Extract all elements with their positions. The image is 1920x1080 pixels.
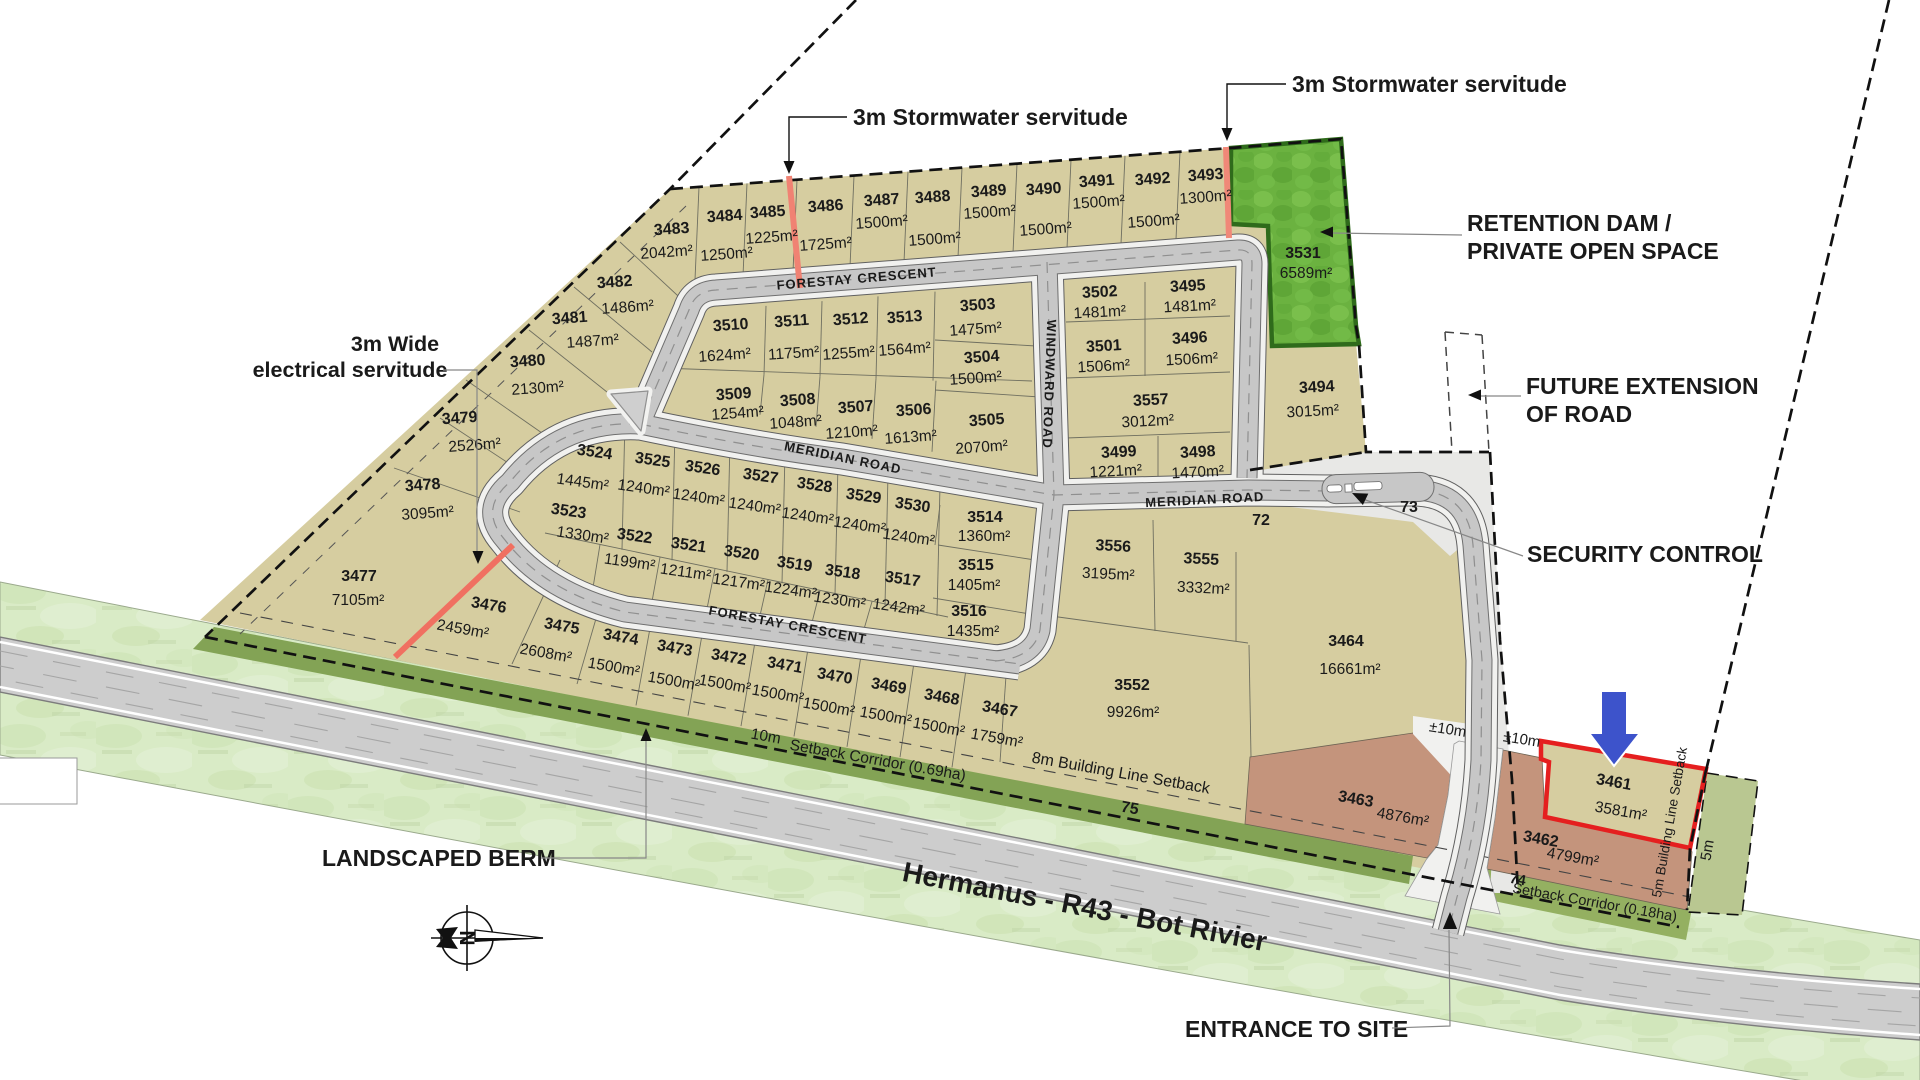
svg-text:3m Wide: 3m Wide bbox=[351, 332, 439, 356]
svg-text:1435m²: 1435m² bbox=[947, 623, 1000, 640]
svg-text:3531: 3531 bbox=[1285, 245, 1321, 262]
svg-text:72: 72 bbox=[1252, 512, 1270, 529]
svg-text:3477: 3477 bbox=[341, 568, 377, 585]
svg-text:3555: 3555 bbox=[1183, 550, 1220, 569]
svg-text:3498: 3498 bbox=[1180, 443, 1217, 462]
svg-text:1405m²: 1405m² bbox=[948, 577, 1001, 594]
svg-text:75: 75 bbox=[1120, 799, 1141, 819]
svg-text:1481m²: 1481m² bbox=[1163, 297, 1216, 317]
svg-text:16661m²: 16661m² bbox=[1319, 661, 1380, 678]
svg-text:3556: 3556 bbox=[1095, 537, 1132, 556]
svg-text:ENTRANCE TO SITE: ENTRANCE TO SITE bbox=[1185, 1016, 1408, 1042]
svg-text:1506m²: 1506m² bbox=[1077, 357, 1130, 377]
svg-text:3195m²: 3195m² bbox=[1082, 565, 1135, 585]
svg-text:3512: 3512 bbox=[832, 310, 869, 329]
svg-text:3516: 3516 bbox=[951, 603, 987, 620]
svg-text:3483: 3483 bbox=[653, 220, 690, 239]
svg-text:3492: 3492 bbox=[1134, 170, 1171, 189]
svg-text:3487: 3487 bbox=[863, 191, 900, 210]
svg-text:3m Stormwater servitude: 3m Stormwater servitude bbox=[1292, 71, 1567, 97]
svg-text:3012m²: 3012m² bbox=[1121, 412, 1174, 432]
svg-text:3552: 3552 bbox=[1114, 677, 1150, 694]
svg-text:7105m²: 7105m² bbox=[332, 592, 385, 609]
svg-text:3488: 3488 bbox=[914, 188, 951, 207]
svg-text:3557: 3557 bbox=[1133, 391, 1170, 410]
svg-text:3478: 3478 bbox=[404, 476, 441, 495]
svg-text:RETENTION DAM /: RETENTION DAM / bbox=[1467, 210, 1672, 236]
svg-text:3m Stormwater servitude: 3m Stormwater servitude bbox=[853, 104, 1128, 130]
svg-text:3501: 3501 bbox=[1086, 337, 1123, 356]
svg-text:3490: 3490 bbox=[1025, 180, 1062, 199]
svg-text:3508: 3508 bbox=[779, 391, 816, 410]
svg-text:6589m²: 6589m² bbox=[1280, 265, 1333, 282]
svg-text:3499: 3499 bbox=[1101, 443, 1138, 462]
svg-text:3332m²: 3332m² bbox=[1177, 579, 1230, 599]
svg-text:1481m²: 1481m² bbox=[1073, 303, 1126, 323]
svg-text:LANDSCAPED BERM: LANDSCAPED BERM bbox=[322, 845, 556, 871]
svg-text:1360m²: 1360m² bbox=[958, 528, 1011, 545]
svg-text:3464: 3464 bbox=[1328, 633, 1364, 650]
svg-text:3482: 3482 bbox=[596, 273, 633, 292]
svg-text:PRIVATE OPEN SPACE: PRIVATE OPEN SPACE bbox=[1467, 238, 1719, 264]
svg-text:1470m²: 1470m² bbox=[1171, 463, 1224, 483]
svg-text:1221m²: 1221m² bbox=[1089, 462, 1142, 482]
svg-text:3496: 3496 bbox=[1172, 329, 1209, 348]
svg-text:3505: 3505 bbox=[968, 411, 1005, 430]
svg-text:SECURITY CONTROL: SECURITY CONTROL bbox=[1527, 541, 1763, 567]
svg-text:3493: 3493 bbox=[1187, 166, 1224, 185]
svg-text:1506m²: 1506m² bbox=[1165, 350, 1218, 370]
svg-text:3509: 3509 bbox=[715, 385, 752, 404]
svg-text:3485: 3485 bbox=[749, 203, 786, 222]
svg-text:9926m²: 9926m² bbox=[1107, 704, 1160, 721]
svg-text:3510: 3510 bbox=[712, 316, 749, 335]
svg-text:3504: 3504 bbox=[963, 348, 1000, 367]
svg-text:OF ROAD: OF ROAD bbox=[1526, 401, 1632, 427]
svg-text:5m: 5m bbox=[1697, 838, 1717, 861]
svg-text:3514: 3514 bbox=[967, 509, 1003, 526]
svg-text:3503: 3503 bbox=[959, 296, 996, 315]
svg-text:3511: 3511 bbox=[774, 312, 810, 331]
svg-text:3481: 3481 bbox=[551, 309, 588, 328]
svg-text:3484: 3484 bbox=[706, 207, 743, 226]
svg-text:1175m²: 1175m² bbox=[767, 343, 819, 364]
svg-text:N: N bbox=[455, 930, 478, 945]
svg-text:3479: 3479 bbox=[441, 409, 478, 428]
svg-text:3495: 3495 bbox=[1170, 277, 1207, 296]
svg-text:3486: 3486 bbox=[807, 197, 844, 216]
svg-text:3506: 3506 bbox=[895, 401, 932, 420]
svg-text:3515: 3515 bbox=[958, 557, 994, 574]
svg-text:3491: 3491 bbox=[1078, 172, 1115, 191]
svg-text:3502: 3502 bbox=[1082, 283, 1119, 302]
svg-text:3494: 3494 bbox=[1299, 378, 1336, 397]
svg-text:3507: 3507 bbox=[837, 398, 874, 417]
svg-text:3513: 3513 bbox=[886, 308, 923, 327]
svg-text:FUTURE EXTENSION: FUTURE EXTENSION bbox=[1526, 373, 1759, 399]
svg-text:electrical servitude: electrical servitude bbox=[253, 358, 448, 382]
svg-text:3489: 3489 bbox=[970, 182, 1007, 201]
svg-text:3480: 3480 bbox=[509, 352, 546, 371]
svg-text:3015m²: 3015m² bbox=[1286, 402, 1339, 422]
